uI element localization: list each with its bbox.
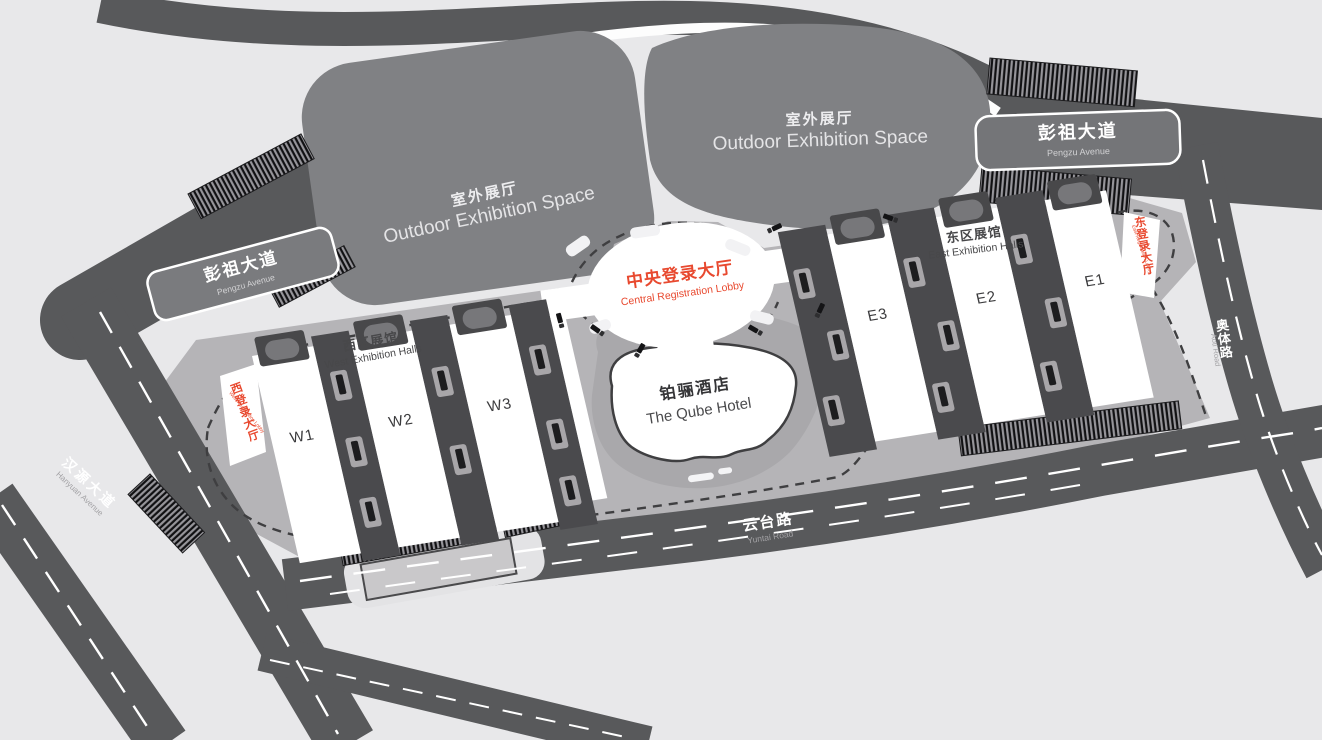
pengzu-avenue-right-sign: 彭祖大道 Pengzu Avenue [975,109,1181,170]
hall-label-e1: E1 [1083,271,1107,291]
svg-text:彭祖大道: 彭祖大道 [1037,120,1118,144]
hall-label-e2: E2 [974,288,998,308]
hall-label-e3: E3 [866,305,890,325]
map-canvas: W1 W2 W3 E3 E2 E1 [0,0,1322,740]
svg-text:室外展厅: 室外展厅 [785,109,854,129]
exhibition-center-site-map: W1 W2 W3 E3 E2 E1 [0,0,1322,740]
